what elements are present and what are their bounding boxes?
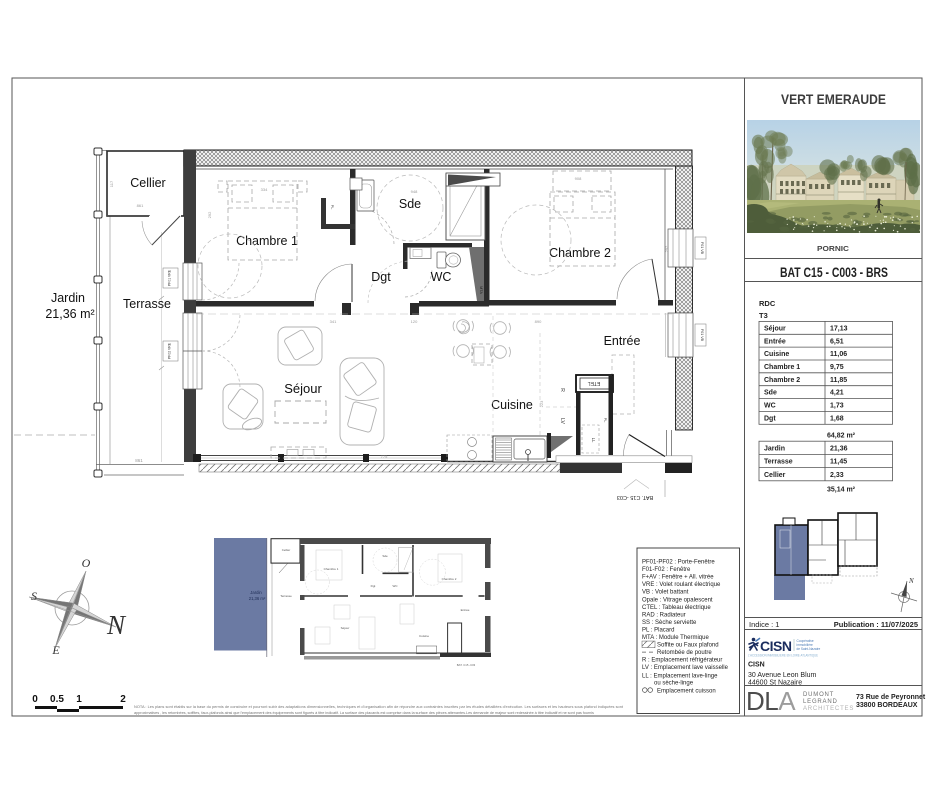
svg-text:Indice : 1: Indice : 1 — [749, 620, 779, 629]
svg-text:Entrée: Entrée — [461, 608, 470, 612]
svg-text:Chambre 1: Chambre 1 — [764, 364, 800, 371]
svg-text:73 Rue de Peyronnet: 73 Rue de Peyronnet — [856, 694, 926, 701]
svg-text:Cuisine: Cuisine — [419, 634, 429, 638]
svg-text:MTA : Module Thermique: MTA : Module Thermique — [642, 635, 709, 641]
svg-text:Chambre 2: Chambre 2 — [442, 577, 457, 581]
svg-text:S: S — [31, 589, 37, 603]
svg-text:117: 117 — [109, 180, 114, 187]
svg-text:Terrasse: Terrasse — [123, 297, 171, 311]
svg-text:0.5: 0.5 — [50, 694, 64, 705]
svg-text:Chambre 1: Chambre 1 — [236, 234, 298, 248]
svg-text:F01-F02 : Fenêtre: F01-F02 : Fenêtre — [642, 567, 691, 573]
svg-text:F+AV : Fenêtre + All. vitrée: F+AV : Fenêtre + All. vitrée — [642, 575, 714, 581]
svg-text:Jardin: Jardin — [51, 291, 85, 305]
svg-text:Retombée de poutre: Retombée de poutre — [657, 650, 712, 656]
svg-text:ou sèche-linge: ou sèche-linge — [654, 681, 694, 687]
svg-text:35,14 m²: 35,14 m² — [827, 487, 856, 494]
svg-text:R : Emplacement réfrigérateur: R : Emplacement réfrigérateur — [642, 658, 722, 664]
svg-text:Dgt: Dgt — [371, 270, 391, 284]
svg-text:21,36 m²: 21,36 m² — [249, 596, 266, 601]
svg-text:292: 292 — [207, 211, 212, 218]
svg-text:11,06: 11,06 — [830, 351, 847, 358]
svg-text:R: R — [559, 388, 565, 392]
svg-text:PORNIC: PORNIC — [817, 244, 850, 253]
svg-text:ETEL: ETEL — [588, 380, 601, 386]
svg-text:9,75: 9,75 — [830, 364, 844, 371]
svg-text:Cellier: Cellier — [764, 472, 786, 479]
svg-text:908: 908 — [575, 176, 582, 181]
svg-text:4,21: 4,21 — [830, 390, 844, 397]
svg-text:O: O — [82, 556, 91, 570]
svg-text:223: 223 — [539, 400, 544, 407]
svg-text:0: 0 — [32, 694, 38, 705]
svg-text:Chambre 2: Chambre 2 — [549, 246, 611, 260]
svg-text:17,13: 17,13 — [830, 325, 848, 332]
svg-text:341: 341 — [330, 319, 337, 324]
svg-text:Entrée: Entrée — [764, 338, 786, 345]
svg-text:MTA: MTA — [479, 286, 483, 294]
svg-text:1,68: 1,68 — [830, 415, 844, 422]
svg-text:WC: WC — [431, 270, 452, 284]
svg-text:64,82 m²: 64,82 m² — [827, 433, 856, 440]
svg-text:VRE : Volet roulant électrique: VRE : Volet roulant électrique — [642, 582, 721, 588]
svg-text:N: N — [908, 577, 914, 585]
svg-text:Publication : 11/07/2025: Publication : 11/07/2025 — [834, 620, 918, 629]
svg-text:LL : Emplacement lave-linge: LL : Emplacement lave-linge — [642, 674, 718, 680]
svg-text:2,33: 2,33 — [830, 472, 844, 479]
svg-text:30 Avenue Leon Blum: 30 Avenue Leon Blum — [748, 672, 817, 679]
svg-text:Chambre 2: Chambre 2 — [764, 377, 800, 384]
svg-text:LV: LV — [559, 418, 565, 424]
svg-text:Jardin: Jardin — [250, 590, 262, 595]
svg-text:T3: T3 — [759, 311, 768, 320]
svg-text:WC: WC — [393, 584, 399, 588]
svg-text:33800 BORDEAUX: 33800 BORDEAUX — [856, 702, 918, 709]
svg-text:WC: WC — [764, 403, 776, 410]
svg-text:Jardin: Jardin — [764, 445, 785, 452]
svg-text:861: 861 — [135, 458, 143, 463]
svg-text:de Saint-Nazaire: de Saint-Nazaire — [797, 647, 821, 651]
svg-text:Cuisine: Cuisine — [491, 398, 533, 412]
svg-text:PL : Placard: PL : Placard — [642, 627, 674, 633]
svg-text:BAT. C15 -C03: BAT. C15 -C03 — [457, 663, 476, 667]
svg-text:948: 948 — [411, 189, 418, 194]
svg-text:PL: PL — [603, 418, 607, 423]
svg-text:Soffite ou Faux plafond: Soffite ou Faux plafond — [657, 643, 719, 649]
svg-text:890: 890 — [535, 319, 542, 324]
svg-text:F01 VB: F01 VB — [700, 329, 704, 342]
svg-text:Cellier: Cellier — [282, 548, 291, 552]
svg-text:VERT EMERAUDE: VERT EMERAUDE — [781, 91, 886, 107]
svg-text:2: 2 — [120, 694, 126, 705]
svg-text:Sde: Sde — [764, 390, 777, 397]
svg-text:11,85: 11,85 — [830, 377, 847, 384]
svg-text:Entrée: Entrée — [604, 334, 641, 348]
svg-text:Dgt: Dgt — [764, 415, 776, 422]
svg-text:11,45: 11,45 — [830, 459, 847, 466]
svg-text:DLA: DLA — [746, 686, 796, 716]
svg-text:Séjour: Séjour — [341, 626, 350, 630]
svg-text:approximatives , les retombées: approximatives , les retombées, soffites… — [134, 710, 594, 715]
svg-text:N: N — [106, 610, 127, 640]
svg-text:E: E — [51, 643, 60, 657]
svg-text:BAT C15 - C003 - BRS: BAT C15 - C003 - BRS — [780, 265, 888, 280]
svg-text:CTEL : Tableau électrique: CTEL : Tableau électrique — [642, 605, 711, 611]
svg-text:BAT. C15 -C03: BAT. C15 -C03 — [617, 494, 653, 500]
svg-text:L'ACCESSION IMMOBILIERE EN LOI: L'ACCESSION IMMOBILIERE EN LOIRE-ATLANTI… — [748, 654, 819, 658]
svg-text:ARCHITECTES: ARCHITECTES — [803, 706, 854, 712]
svg-text:Dgt: Dgt — [371, 584, 376, 588]
svg-text:LEGRAND: LEGRAND — [803, 699, 838, 705]
svg-text:1: 1 — [76, 694, 82, 705]
svg-text:DUMONT: DUMONT — [803, 692, 834, 698]
svg-text:RAD : Radiateur: RAD : Radiateur — [642, 612, 686, 618]
svg-text:PF01 VRE: PF01 VRE — [168, 269, 172, 286]
svg-text:334: 334 — [261, 187, 268, 192]
svg-text:Séjour: Séjour — [764, 325, 786, 332]
svg-text:F01 VB: F01 VB — [700, 242, 704, 255]
svg-text:Opale : Vitrage opalescent: Opale : Vitrage opalescent — [642, 597, 713, 603]
svg-text:1,73: 1,73 — [830, 403, 844, 410]
svg-text:Emplacement cuisson: Emplacement cuisson — [657, 688, 716, 694]
svg-text:LV : Emplacement lave vaissell: LV : Emplacement lave vaisselle — [642, 665, 729, 671]
svg-text:292: 292 — [664, 245, 669, 252]
svg-text:LL: LL — [591, 438, 596, 443]
svg-text:CISN: CISN — [760, 638, 792, 654]
svg-text:SS : Sèche serviette: SS : Sèche serviette — [642, 620, 697, 626]
svg-text:NOTA : Les plans sont établis: NOTA : Les plans sont établis sur la bas… — [134, 704, 624, 709]
svg-text:Sde: Sde — [399, 197, 421, 211]
svg-text:VB : Volet battant: VB : Volet battant — [642, 590, 689, 596]
svg-text:PF01-PF02 : Porte-Fenêtre: PF01-PF02 : Porte-Fenêtre — [642, 560, 715, 566]
svg-text:CISN: CISN — [748, 662, 765, 669]
svg-text:Chambre 1: Chambre 1 — [324, 567, 339, 571]
svg-text:Cuisine: Cuisine — [764, 351, 789, 358]
svg-text:Cellier: Cellier — [130, 176, 165, 190]
svg-text:PL: PL — [330, 205, 334, 210]
svg-text:Sde: Sde — [382, 554, 388, 558]
svg-text:21,36: 21,36 — [830, 445, 848, 452]
svg-text:PF02 VRE: PF02 VRE — [168, 342, 172, 359]
svg-text:21,36 m²: 21,36 m² — [45, 307, 94, 321]
svg-text:775: 775 — [381, 454, 388, 459]
svg-text:6,51: 6,51 — [830, 338, 844, 345]
svg-text:RDC: RDC — [759, 299, 776, 308]
svg-text:Terrasse: Terrasse — [280, 594, 292, 598]
svg-text:861: 861 — [137, 203, 144, 208]
svg-text:Terrasse: Terrasse — [764, 459, 793, 466]
svg-text:Séjour: Séjour — [284, 381, 322, 396]
svg-text:120: 120 — [411, 319, 418, 324]
